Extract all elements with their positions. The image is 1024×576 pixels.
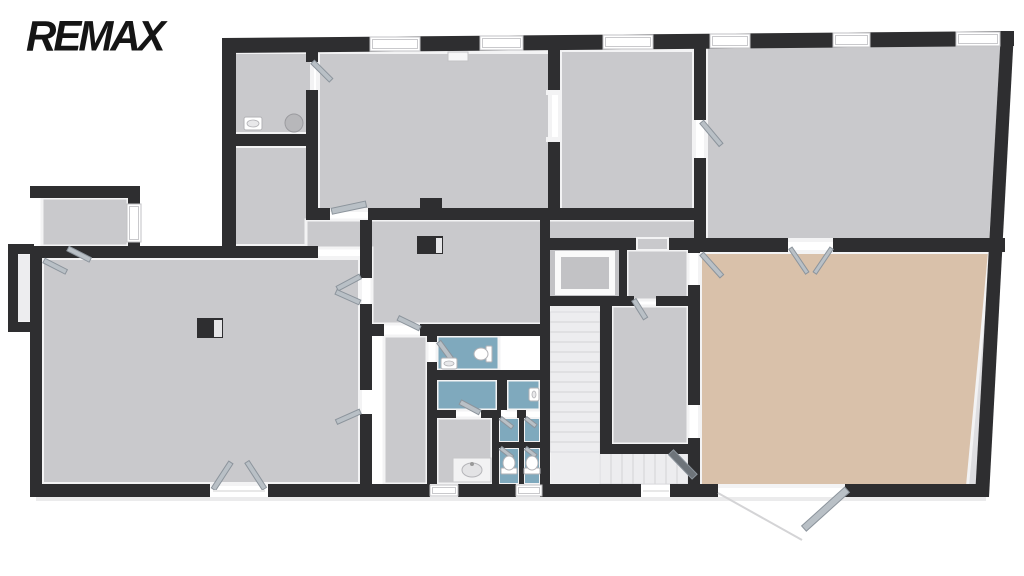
floor-main-room-right xyxy=(700,252,990,486)
window xyxy=(516,485,542,496)
wall-bath-low-c xyxy=(517,410,526,418)
wall-mid-horizontal-a xyxy=(306,208,330,220)
floor-corridor-room xyxy=(384,336,427,484)
wall-office-divider-a xyxy=(548,46,560,94)
floor-understair-room xyxy=(612,306,688,444)
wall-office-right-b xyxy=(694,158,706,252)
wall-stall-left xyxy=(492,418,499,484)
wall-elevator-bottom xyxy=(550,296,627,306)
wall-elevator-right xyxy=(619,238,627,300)
wall-bigroom-right-c xyxy=(360,414,372,484)
remax-logo: REMAX xyxy=(26,12,163,61)
wall-bottom-a xyxy=(30,484,210,497)
wall-bigroom-right-a xyxy=(360,220,372,278)
wall-cluster-left-a xyxy=(427,336,437,342)
wall-bottom-d xyxy=(542,484,641,497)
wall-cluster-top-b xyxy=(420,324,550,336)
wall-left-exterior xyxy=(30,246,42,497)
floor-main-room-left xyxy=(42,258,360,484)
wall-tanroom-top-a xyxy=(688,238,788,252)
floor-office-middle xyxy=(560,50,694,210)
opening-jamb xyxy=(546,137,562,142)
floor-office-right xyxy=(706,40,1004,240)
window xyxy=(430,485,458,496)
floor-vestibule xyxy=(42,198,128,246)
chimney-block-face xyxy=(436,238,442,253)
passage-patch xyxy=(637,238,668,250)
wall-understair-left xyxy=(600,306,612,444)
wall-wc-right-a xyxy=(306,52,318,62)
sink-fixture xyxy=(444,361,454,366)
wall-cluster-left-b xyxy=(427,362,437,484)
wall-stairhall-left xyxy=(540,220,550,497)
wall-bottom-f xyxy=(845,484,986,497)
wall-bath-low-a xyxy=(427,410,456,418)
wall-bottom-e xyxy=(670,484,718,497)
floor-office-left xyxy=(318,52,550,210)
sink-fixture xyxy=(532,391,536,398)
wall-mid-horizontal-b xyxy=(368,208,700,220)
wall-wc-right-b xyxy=(306,90,318,212)
radiator-fixture xyxy=(448,52,468,61)
wall-bay-bottom xyxy=(8,322,34,332)
floor-plan xyxy=(0,0,1024,576)
opening-jamb xyxy=(546,90,562,95)
floor-storage-room xyxy=(232,146,312,246)
wall-bottom-c xyxy=(458,484,516,497)
wall-bath-mid xyxy=(427,370,540,380)
wall-bath-low-b xyxy=(481,410,501,418)
wall-tanroom-left-b xyxy=(688,285,700,405)
vanity-faucet xyxy=(470,462,474,466)
wall-stall-mid-v xyxy=(519,418,524,484)
wall-office-divider-b xyxy=(548,142,560,220)
round-fixture xyxy=(285,114,303,132)
wall-bay-left xyxy=(8,244,18,332)
sink-fixture xyxy=(247,120,259,127)
column-face xyxy=(214,320,222,337)
wall-cluster-top-a xyxy=(372,324,384,336)
wall-tanroom-left-a xyxy=(688,238,700,253)
exterior-door-leaf xyxy=(802,487,850,531)
wall-vestibule-top xyxy=(30,186,140,198)
wall-bigroom-right-b xyxy=(360,304,372,390)
wall-wc-divider xyxy=(232,134,312,146)
floor-hallway xyxy=(627,250,688,300)
wall-office-right-a xyxy=(694,46,706,120)
wall-bath-divider xyxy=(497,380,507,410)
chimney-on-wall xyxy=(420,198,442,210)
wall-tanroom-top-b xyxy=(833,238,1005,252)
wall-stall-mid-h xyxy=(499,442,540,448)
wall-hallway-bottom-b xyxy=(656,296,688,306)
floor-plan-canvas: REMAX xyxy=(0,0,1024,576)
wall-bottom-b xyxy=(268,484,430,497)
